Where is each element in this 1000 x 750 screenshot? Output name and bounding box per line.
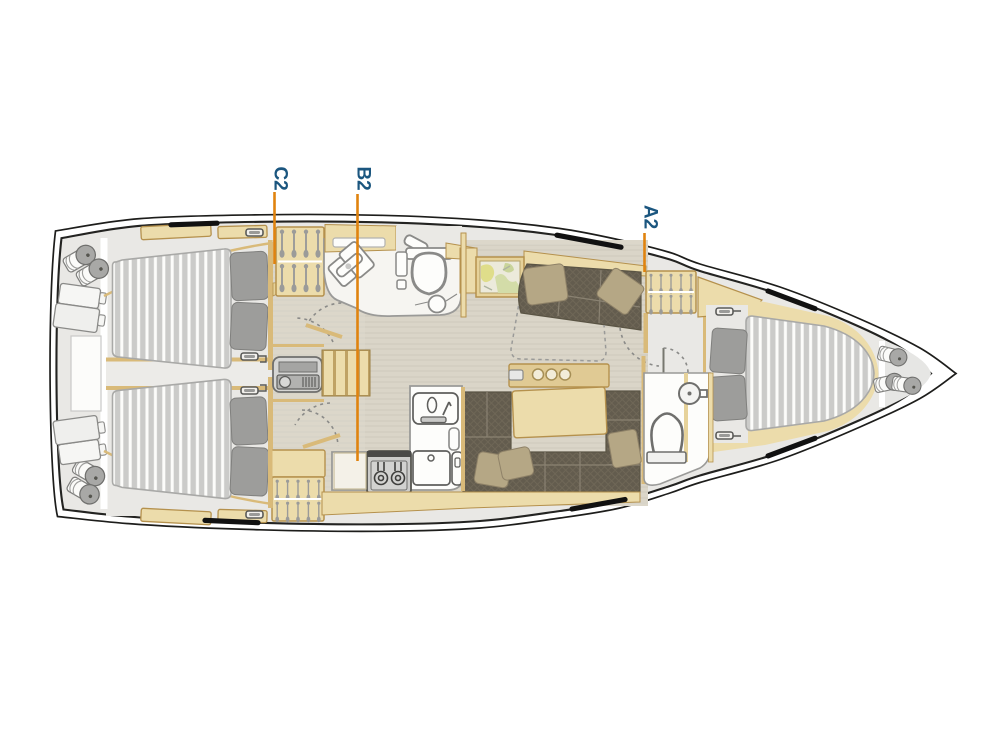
svg-text:B2: B2 bbox=[353, 166, 374, 190]
svg-text:C2: C2 bbox=[270, 166, 291, 190]
svg-text:A2: A2 bbox=[640, 205, 661, 229]
